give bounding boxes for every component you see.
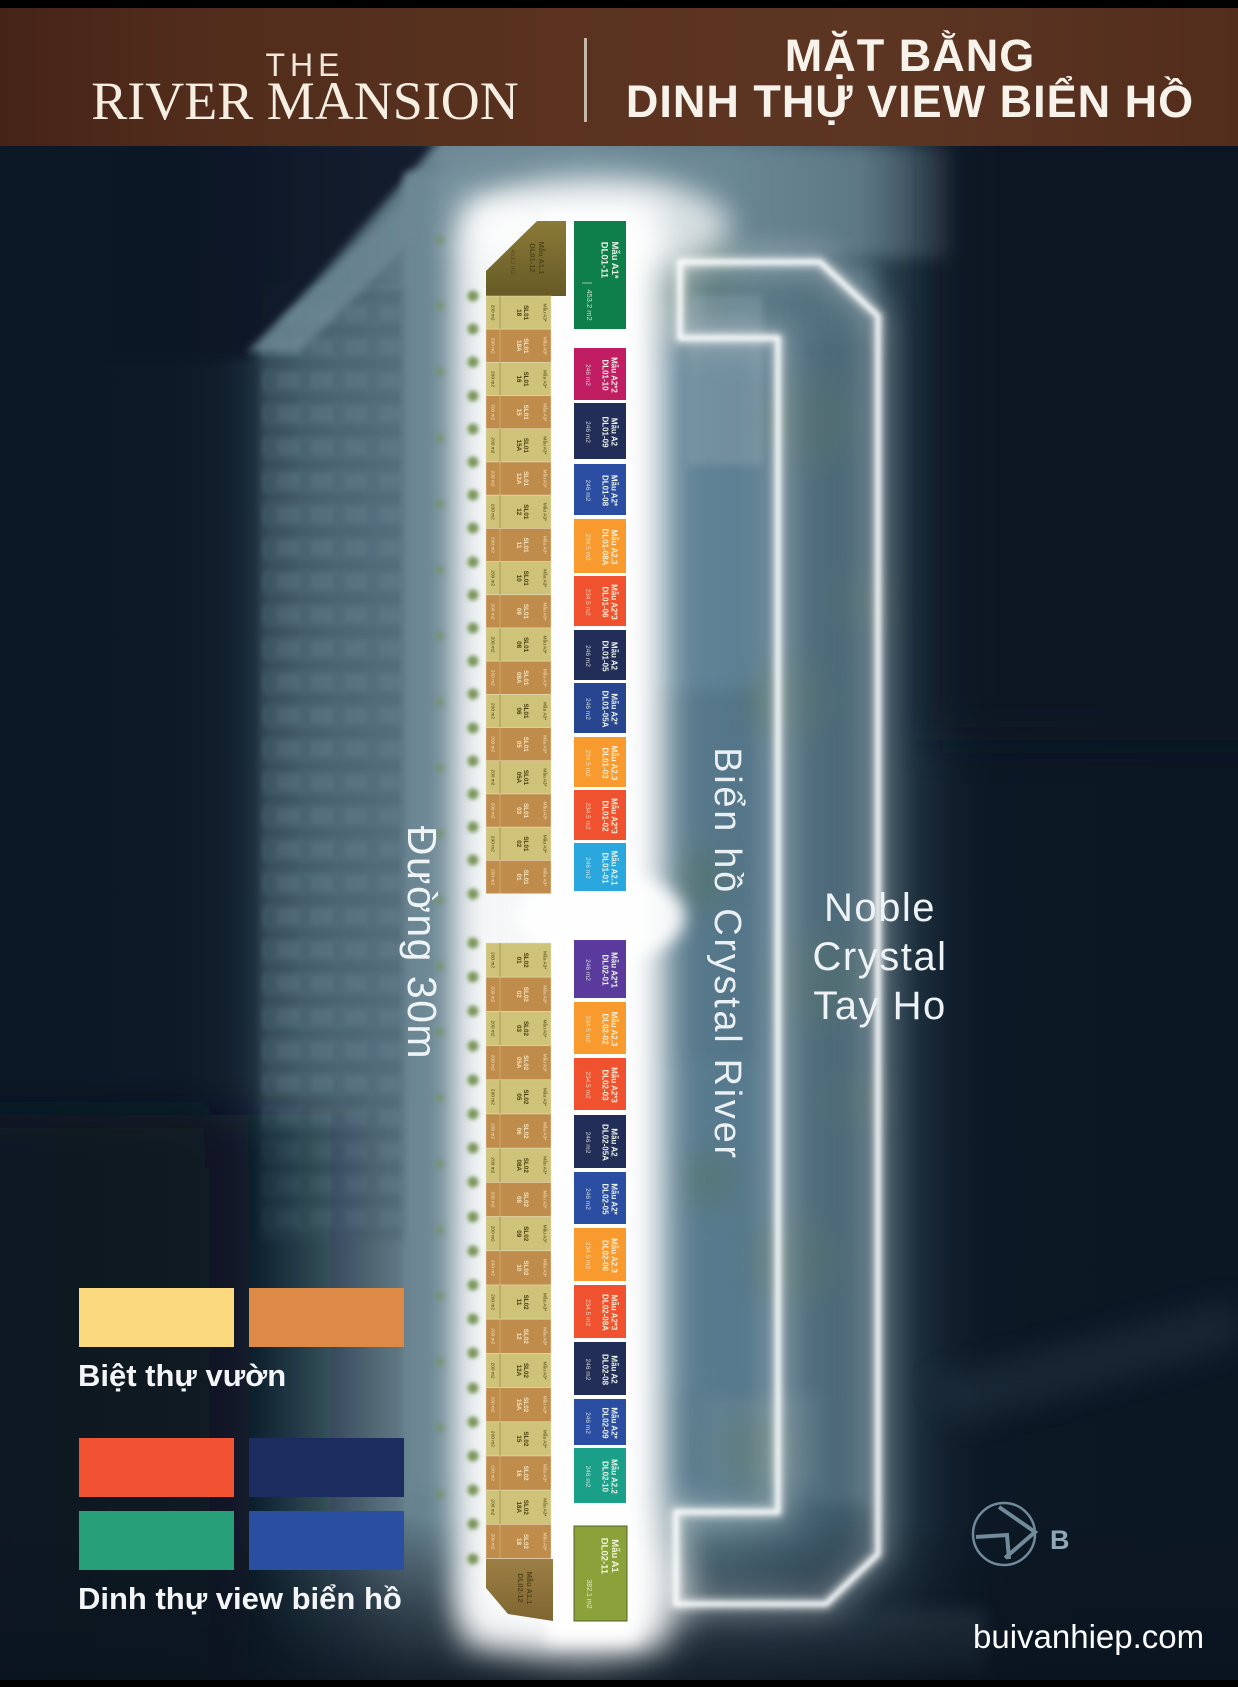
svg-text:Mẫu A3*: Mẫu A3*	[541, 702, 548, 720]
svg-text:453.2 m2: 453.2 m2	[585, 289, 594, 320]
svg-text:DL01-05: DL01-05	[601, 640, 610, 672]
svg-text:200 m2: 200 m2	[489, 637, 495, 653]
svg-text:200 m2: 200 m2	[489, 1192, 495, 1208]
svg-text:DL01-09: DL01-09	[601, 416, 610, 448]
svg-text:200 m2: 200 m2	[489, 1294, 495, 1310]
svg-text:Mẫu A3*: Mẫu A3*	[541, 569, 548, 587]
svg-text:Mẫu A2*3: Mẫu A2*3	[610, 1295, 619, 1331]
svg-text:12: 12	[515, 508, 522, 516]
svg-text:15A: 15A	[515, 1399, 522, 1411]
svg-text:Mẫu A2.2: Mẫu A2.2	[610, 1459, 619, 1494]
svg-text:03: 03	[515, 1025, 522, 1033]
svg-text:SL01: SL01	[522, 571, 529, 587]
svg-text:SL02: SL02	[522, 1466, 529, 1482]
svg-text:12: 12	[515, 1333, 522, 1341]
svg-text:DL02-12: DL02-12	[516, 1573, 525, 1602]
svg-text:Biển hồ Crystal River: Biển hồ Crystal River	[706, 747, 748, 1161]
svg-text:16: 16	[515, 1470, 522, 1478]
svg-text:SL01: SL01	[522, 371, 529, 387]
svg-text:Mẫu A2*: Mẫu A2*	[610, 693, 619, 725]
svg-text:08A: 08A	[515, 1160, 522, 1172]
svg-text:Mẫu A3*: Mẫu A3*	[541, 503, 548, 521]
svg-text:Mẫu A2: Mẫu A2	[610, 642, 619, 671]
svg-text:SL01: SL01	[522, 670, 529, 686]
svg-text:DL01-01: DL01-01	[601, 852, 610, 884]
svg-text:SL01: SL01	[522, 770, 529, 786]
svg-text:11: 11	[515, 1299, 522, 1306]
svg-text:Mẫu A3*: Mẫu A3*	[541, 1225, 548, 1243]
svg-text:Mẫu A1: Mẫu A1	[609, 1539, 620, 1573]
svg-text:200 m2: 200 m2	[489, 371, 495, 387]
svg-text:SL02: SL02	[522, 987, 529, 1003]
svg-text:Mẫu A3*: Mẫu A3*	[541, 669, 548, 687]
svg-text:Mẫu A3*: Mẫu A3*	[541, 1361, 548, 1379]
svg-text:Mẫu A1*: Mẫu A1*	[609, 241, 620, 278]
svg-text:SL02: SL02	[522, 1124, 529, 1140]
svg-text:DL02-01: DL02-01	[601, 954, 610, 986]
svg-text:200 m2: 200 m2	[489, 338, 495, 354]
svg-text:SL01: SL01	[522, 637, 529, 653]
svg-text:DL02-06: DL02-06	[601, 1240, 610, 1272]
svg-text:200 m2: 200 m2	[489, 803, 495, 819]
svg-text:SL02: SL02	[522, 1158, 529, 1174]
svg-text:SL01: SL01	[522, 471, 529, 487]
svg-text:Mẫu A3*: Mẫu A3*	[541, 636, 548, 654]
svg-text:Crystal: Crystal	[813, 935, 948, 979]
svg-text:SL02: SL02	[522, 1226, 529, 1242]
svg-text:15: 15	[515, 409, 522, 417]
svg-text:02: 02	[515, 840, 522, 848]
svg-text:DL02-11: DL02-11	[599, 1538, 610, 1575]
svg-text:200 m2: 200 m2	[489, 537, 495, 553]
svg-text:SL02: SL02	[522, 1021, 529, 1037]
svg-text:SL02: SL02	[522, 1431, 529, 1447]
svg-text:18: 18	[515, 1538, 522, 1546]
svg-text:Mẫu A2.1: Mẫu A2.1	[610, 851, 619, 886]
svg-text:200 m2: 200 m2	[489, 471, 495, 487]
svg-text:200 m2: 200 m2	[489, 1055, 495, 1071]
svg-text:DL01-06: DL01-06	[601, 586, 610, 618]
svg-text:11: 11	[515, 542, 522, 549]
svg-text:Mẫu A3*: Mẫu A3*	[541, 1532, 548, 1550]
svg-text:200 m2: 200 m2	[489, 504, 495, 520]
svg-text:12A: 12A	[515, 1365, 522, 1377]
svg-text:Mẫu A3*: Mẫu A3*	[541, 951, 548, 969]
svg-text:Mẫu A1.1: Mẫu A1.1	[537, 242, 546, 275]
svg-text:08A: 08A	[515, 672, 522, 684]
svg-text:15: 15	[515, 1435, 522, 1443]
svg-text:234.5 m2: 234.5 m2	[584, 588, 591, 615]
svg-text:10: 10	[515, 575, 522, 583]
svg-text:SL01: SL01	[522, 338, 529, 354]
svg-text:08: 08	[515, 641, 522, 649]
svg-text:234.5 m2: 234.5 m2	[584, 533, 591, 560]
svg-text:01: 01	[515, 957, 522, 965]
svg-text:buivanhiep.com: buivanhiep.com	[973, 1618, 1204, 1655]
svg-text:DL02-03: DL02-03	[601, 1069, 610, 1101]
svg-text:Mẫu A3*: Mẫu A3*	[541, 470, 548, 488]
svg-text:200 m2: 200 m2	[489, 836, 495, 852]
svg-text:Mẫu A3*: Mẫu A3*	[541, 1430, 548, 1448]
svg-text:200 m2: 200 m2	[489, 769, 495, 785]
svg-text:382.1 m2: 382.1 m2	[585, 1579, 592, 1608]
svg-text:18A: 18A	[515, 1502, 522, 1514]
svg-text:SL02: SL02	[522, 1055, 529, 1071]
svg-text:234.5 m2: 234.5 m2	[584, 1015, 591, 1042]
svg-text:Mẫu A3*: Mẫu A3*	[541, 602, 548, 620]
svg-text:SL01: SL01	[522, 836, 529, 852]
svg-text:Mẫu A3*: Mẫu A3*	[541, 337, 548, 355]
svg-text:Mẫu A3*: Mẫu A3*	[541, 768, 548, 786]
svg-text:Mẫu A3*: Mẫu A3*	[541, 436, 548, 454]
svg-text:DL01-11: DL01-11	[599, 242, 610, 279]
svg-text:200 m2: 200 m2	[489, 986, 495, 1002]
svg-text:200 m2: 200 m2	[489, 1226, 495, 1242]
svg-text:200 m2: 200 m2	[489, 603, 495, 619]
svg-text:Mẫu A3*: Mẫu A3*	[541, 1122, 548, 1140]
svg-text:200 m2: 200 m2	[489, 1123, 495, 1139]
svg-text:Mẫu A3*: Mẫu A3*	[541, 1054, 548, 1072]
svg-text:200 m2: 200 m2	[489, 736, 495, 752]
svg-text:SL01: SL01	[522, 803, 529, 819]
svg-text:246 m2: 246 m2	[584, 1466, 591, 1488]
svg-text:DL02-05: DL02-05	[601, 1183, 610, 1215]
svg-text:Mẫu A2*1: Mẫu A2*1	[610, 952, 619, 988]
svg-text:DL01-12: DL01-12	[528, 243, 537, 272]
svg-text:SL01: SL01	[522, 703, 529, 719]
svg-text:SL02: SL02	[522, 953, 529, 969]
svg-text:Mẫu A2*2: Mẫu A2*2	[610, 357, 619, 393]
svg-text:200 m2: 200 m2	[489, 570, 495, 586]
svg-text:SL01: SL01	[522, 504, 529, 520]
svg-text:Mẫu A3*: Mẫu A3*	[541, 536, 548, 554]
svg-text:Mẫu A2*3: Mẫu A2*3	[610, 1067, 619, 1103]
svg-text:Mẫu A2: Mẫu A2	[610, 1355, 619, 1384]
svg-text:246 m2: 246 m2	[584, 1359, 591, 1381]
svg-text:Mẫu A2*: Mẫu A2*	[610, 1407, 619, 1439]
svg-text:234.5 m2: 234.5 m2	[584, 802, 591, 829]
svg-text:09: 09	[515, 1230, 522, 1238]
svg-text:200 m2: 200 m2	[489, 1021, 495, 1037]
svg-text:DL01-08A: DL01-08A	[601, 529, 610, 566]
svg-text:Mẫu A3*: Mẫu A3*	[541, 802, 548, 820]
svg-text:18A: 18A	[515, 340, 522, 352]
svg-text:06: 06	[515, 707, 522, 715]
svg-text:Mẫu A3*: Mẫu A3*	[541, 1259, 548, 1277]
svg-text:DL02-05A: DL02-05A	[601, 1124, 610, 1161]
svg-text:SL01: SL01	[522, 604, 529, 620]
svg-text:Mẫu A3*: Mẫu A3*	[541, 1464, 548, 1482]
svg-text:Mẫu A3*: Mẫu A3*	[541, 1293, 548, 1311]
svg-text:234.5 m2: 234.5 m2	[584, 1299, 591, 1326]
svg-text:200 m2: 200 m2	[489, 869, 495, 885]
svg-text:Mẫu A2*3: Mẫu A2*3	[610, 584, 619, 620]
svg-text:DL02-08A: DL02-08A	[601, 1294, 610, 1331]
svg-text:05A: 05A	[515, 772, 522, 784]
svg-text:200 m2: 200 m2	[489, 703, 495, 719]
svg-text:234.5 m2: 234.5 m2	[584, 1071, 591, 1098]
svg-text:Mẫu A3*: Mẫu A3*	[541, 1190, 548, 1208]
svg-text:SL02: SL02	[522, 1329, 529, 1345]
svg-text:Tay Ho: Tay Ho	[813, 984, 947, 1028]
svg-text:Mẫu A3*: Mẫu A3*	[541, 1327, 548, 1345]
svg-text:200 m2: 200 m2	[489, 1328, 495, 1344]
svg-text:SL02: SL02	[522, 1260, 529, 1276]
svg-text:08: 08	[515, 1196, 522, 1204]
svg-text:SL02: SL02	[522, 1500, 529, 1516]
svg-text:B: B	[1050, 1525, 1070, 1555]
svg-text:Mẫu A2: Mẫu A2	[610, 1128, 619, 1157]
svg-text:234.5 m2: 234.5 m2	[584, 1242, 591, 1269]
svg-text:Mẫu A3*: Mẫu A3*	[541, 304, 548, 322]
svg-text:Noble: Noble	[824, 886, 936, 930]
svg-text:05: 05	[515, 741, 522, 749]
svg-text:DL02-09: DL02-09	[601, 1407, 610, 1439]
svg-text:Mẫu A3*: Mẫu A3*	[541, 1088, 548, 1106]
svg-text:Mẫu A3*: Mẫu A3*	[541, 1498, 548, 1516]
svg-text:Mẫu A3*: Mẫu A3*	[541, 868, 548, 886]
svg-text:200 m2: 200 m2	[489, 1363, 495, 1379]
svg-text:200 m2: 200 m2	[489, 1499, 495, 1515]
svg-text:DL01-08: DL01-08	[601, 475, 610, 507]
svg-text:246 m2: 246 m2	[584, 480, 591, 502]
svg-text:200 m2: 200 m2	[489, 670, 495, 686]
svg-text:Mẫu A1.1: Mẫu A1.1	[525, 1572, 534, 1605]
svg-text:DL01-10: DL01-10	[601, 359, 610, 391]
svg-text:200 m2: 200 m2	[489, 437, 495, 453]
svg-text:234.5 m2: 234.5 m2	[584, 749, 591, 776]
svg-text:SL01: SL01	[522, 305, 529, 321]
svg-text:200 m2: 200 m2	[489, 305, 495, 321]
svg-text:DL02-10: DL02-10	[601, 1461, 610, 1493]
svg-text:246 m2: 246 m2	[584, 1132, 591, 1154]
svg-text:246 m2: 246 m2	[584, 645, 591, 667]
svg-text:SL02: SL02	[522, 1089, 529, 1105]
svg-text:Mẫu A2*: Mẫu A2*	[610, 1183, 619, 1215]
svg-text:Mẫu A2.3: Mẫu A2.3	[610, 530, 619, 565]
svg-text:16: 16	[515, 375, 522, 383]
svg-text:02: 02	[515, 991, 522, 999]
svg-text:246 m2: 246 m2	[584, 959, 591, 981]
svg-text:246 m2: 246 m2	[584, 698, 591, 720]
svg-text:200 m2: 200 m2	[489, 1534, 495, 1550]
svg-text:Mẫu A2.3: Mẫu A2.3	[610, 746, 619, 781]
svg-text:200 m2: 200 m2	[489, 1157, 495, 1173]
svg-text:06: 06	[515, 1128, 522, 1136]
svg-text:Biệt thự vườn: Biệt thự vườn	[78, 1358, 286, 1393]
svg-text:SL01: SL01	[522, 737, 529, 753]
svg-text:12A: 12A	[515, 473, 522, 485]
svg-text:SL02: SL02	[522, 1397, 529, 1413]
svg-text:DL01-03: DL01-03	[601, 747, 610, 779]
svg-text:Mẫu A3*: Mẫu A3*	[541, 835, 548, 853]
svg-text:246 m2: 246 m2	[584, 421, 591, 443]
svg-text:Mẫu A2.3: Mẫu A2.3	[610, 1238, 619, 1273]
svg-text:200 m2: 200 m2	[489, 1397, 495, 1413]
svg-text:SL02: SL02	[522, 1295, 529, 1311]
svg-text:200 m2: 200 m2	[489, 952, 495, 968]
svg-text:SL01: SL01	[522, 405, 529, 421]
svg-text:200 m2: 200 m2	[489, 1431, 495, 1447]
svg-text:246 m2: 246 m2	[584, 364, 591, 386]
svg-text:DL02-08: DL02-08	[601, 1354, 610, 1386]
svg-text:246 m2: 246 m2	[584, 1188, 591, 1210]
svg-text:Mẫu A3*: Mẫu A3*	[541, 1396, 548, 1414]
svg-text:200 m2: 200 m2	[489, 404, 495, 420]
svg-text:DL01-02: DL01-02	[601, 800, 610, 832]
svg-text:200 m2: 200 m2	[489, 1089, 495, 1105]
svg-text:453.2 m2: 453.2 m2	[509, 249, 515, 275]
svg-text:Mẫu A3*: Mẫu A3*	[541, 1019, 548, 1037]
svg-text:18: 18	[515, 309, 522, 317]
svg-text:DL01-05A: DL01-05A	[601, 691, 610, 728]
svg-text:Mẫu A3*: Mẫu A3*	[541, 1156, 548, 1174]
svg-text:09: 09	[515, 608, 522, 616]
svg-text:Đường 30m: Đường 30m	[399, 826, 445, 1060]
svg-text:SL01: SL01	[522, 537, 529, 553]
svg-text:Mẫu A2*3: Mẫu A2*3	[610, 798, 619, 834]
svg-text:05A: 05A	[515, 1057, 522, 1069]
svg-text:SL02: SL02	[522, 1363, 529, 1379]
svg-text:15A: 15A	[515, 440, 522, 452]
svg-text:Mẫu A3*: Mẫu A3*	[541, 985, 548, 1003]
svg-text:SL01: SL01	[522, 869, 529, 885]
svg-text:SL01: SL01	[522, 438, 529, 454]
svg-text:Mẫu A3*: Mẫu A3*	[541, 403, 548, 421]
svg-text:246 m2: 246 m2	[584, 1412, 591, 1434]
svg-text:200 m2: 200 m2	[489, 1260, 495, 1276]
svg-text:SL02: SL02	[522, 1534, 529, 1550]
svg-text:Dinh thự view biển hồ: Dinh thự view biển hồ	[78, 1581, 402, 1616]
svg-text:01: 01	[515, 873, 522, 881]
svg-text:Mẫu A3*: Mẫu A3*	[541, 370, 548, 388]
svg-text:Mẫu A2: Mẫu A2	[610, 418, 619, 447]
svg-text:SL02: SL02	[522, 1192, 529, 1208]
svg-text:Mẫu A2.3: Mẫu A2.3	[610, 1012, 619, 1047]
svg-text:Mẫu A2*: Mẫu A2*	[610, 475, 619, 507]
svg-text:10: 10	[515, 1264, 522, 1272]
svg-text:05: 05	[515, 1093, 522, 1101]
svg-text:246 m2: 246 m2	[584, 857, 591, 879]
svg-text:Mẫu A3*: Mẫu A3*	[541, 735, 548, 753]
svg-text:DL02-02: DL02-02	[601, 1013, 610, 1045]
svg-text:03: 03	[515, 807, 522, 815]
svg-text:200 m2: 200 m2	[489, 1465, 495, 1481]
